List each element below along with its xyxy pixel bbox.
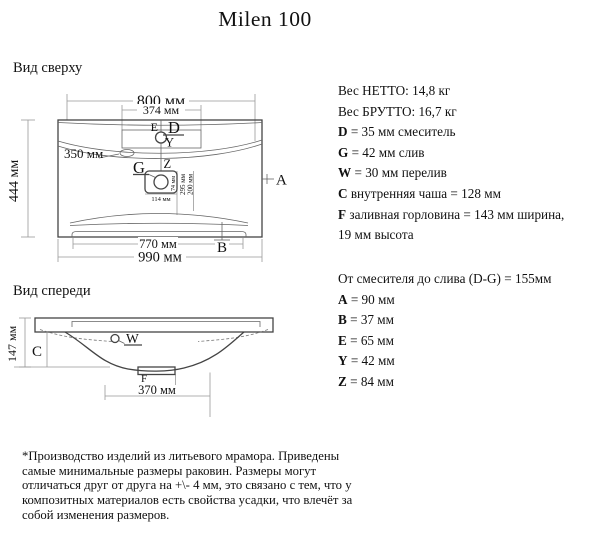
spec-line: Y = 42 мм (338, 351, 551, 372)
hidden-edge-right (198, 330, 268, 342)
overflow-hole-front (111, 335, 119, 343)
dim-200-label: 200 мм (187, 173, 195, 195)
marker-e-label: E (151, 120, 158, 134)
marker-z-label: Z (164, 157, 172, 171)
bowl-profile (65, 332, 244, 371)
front-view-dimension-lines (14, 318, 210, 417)
dim-74-label: 74 мм (171, 176, 177, 191)
spec-list-letters: От смесителя до слива (D-G) = 155мм A = … (338, 269, 551, 393)
dim-370-label: 370 мм (138, 383, 176, 397)
front-view-basin-outline (35, 318, 273, 375)
dim-374-label: 374 мм (143, 103, 180, 117)
spec-line: C внутренняя чаша = 128 мм (338, 184, 564, 205)
top-view-label: Вид сверху (13, 60, 82, 77)
marker-g-label: G (133, 158, 145, 177)
spec-sheet: Milen 100 Вид сверху (0, 0, 600, 554)
spec-line: E = 65 мм (338, 331, 551, 352)
dim-350-label: 350 мм (64, 146, 103, 161)
marker-y-label: Y (165, 136, 174, 150)
spec-line: W = 30 мм перелив (338, 163, 564, 184)
marker-w-label: W (126, 331, 139, 346)
spec-line: Вес БРУТТО: 16,7 кг (338, 102, 564, 123)
front-view-labels: 147 мм C W F 370 мм (5, 325, 176, 397)
dim-990-label: 990 мм (138, 250, 182, 266)
spec-line: B = 37 мм (338, 310, 551, 331)
disclaimer-line: *Производство изделий из литьевого мрамо… (22, 449, 352, 464)
countertop-edge (35, 318, 273, 332)
spec-line: A = 90 мм (338, 290, 551, 311)
spec-line: D = 35 мм смеситель (338, 122, 564, 143)
disclaimer-note: *Производство изделий из литьевого мрамо… (22, 449, 352, 523)
spec-list-weights: Вес НЕТТО: 14,8 кг Вес БРУТТО: 16,7 кг D… (338, 81, 564, 246)
drain-hole (154, 175, 168, 189)
spec-line: Вес НЕТТО: 14,8 кг (338, 81, 564, 102)
dim-147-label: 147 мм (5, 325, 19, 362)
disclaimer-line: собой изменения размеров. (22, 508, 352, 523)
dim-444-label: 444 мм (7, 160, 22, 202)
disclaimer-line: самые минимальные размеры раковин. Разме… (22, 464, 352, 479)
spec-line: 19 мм высота (338, 225, 564, 246)
top-view-drawing: 800 мм 374 мм 444 мм 350 мм E D Y Z G 74… (0, 85, 300, 271)
front-view-drawing: 147 мм C W F 370 мм (0, 305, 300, 427)
marker-a-label: A (276, 173, 287, 189)
spec-line: Z = 84 мм (338, 372, 551, 393)
front-view-label: Вид спереди (13, 283, 91, 300)
spec-line: G = 42 мм слив (338, 143, 564, 164)
marker-c-label: C (32, 344, 42, 360)
top-view-labels: 800 мм 374 мм 444 мм 350 мм E D Y Z G 74… (7, 93, 287, 266)
marker-d-label: D (168, 118, 180, 137)
dim-114-label: 114 мм (151, 196, 170, 203)
disclaimer-line: отличаться друг от друга на +\- 4 мм, эт… (22, 478, 352, 493)
deck-recess (122, 130, 201, 148)
bowl-rim-front-curve (70, 214, 248, 224)
spec-line: F заливная горловина = 143 мм ширина, (338, 205, 564, 226)
spec-line: От смесителя до слива (D-G) = 155мм (338, 269, 551, 290)
marker-b-label: B (217, 240, 227, 256)
page-title: Milen 100 (0, 7, 530, 32)
disclaimer-line: композитных материалов есть свойства уса… (22, 493, 352, 508)
bowl-rim-front-curve-2 (70, 223, 248, 225)
